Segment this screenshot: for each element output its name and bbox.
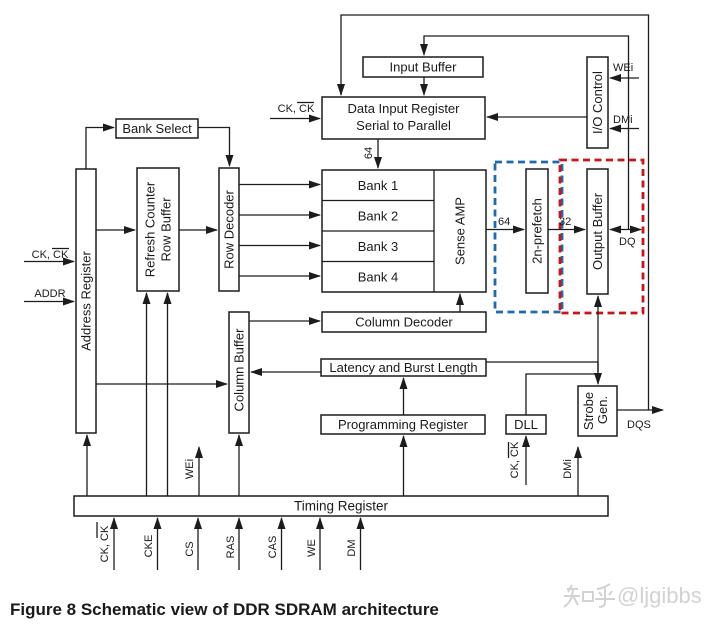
svg-text:Bank 3: Bank 3 — [358, 239, 398, 254]
svg-text:Bank Select: Bank Select — [122, 121, 192, 136]
svg-text:Row Decoder: Row Decoder — [222, 189, 237, 268]
svg-text:I/O Control: I/O Control — [590, 71, 605, 134]
svg-text:DQ: DQ — [619, 236, 636, 248]
svg-text:Programming Register: Programming Register — [338, 417, 469, 432]
svg-text:RAS: RAS — [225, 536, 237, 559]
svg-text:Timing Register: Timing Register — [294, 499, 389, 514]
svg-text:Input Buffer: Input Buffer — [390, 60, 458, 75]
svg-text:Column Buffer: Column Buffer — [232, 328, 247, 412]
svg-text:Bank 4: Bank 4 — [358, 270, 398, 285]
svg-text:Serial to Parallel: Serial to Parallel — [356, 118, 451, 133]
svg-text:Row Buffer: Row Buffer — [159, 197, 174, 262]
svg-text:WE: WE — [306, 539, 318, 557]
svg-text:Figure 8 Schematic view of DDR: Figure 8 Schematic view of DDR SDRAM arc… — [10, 600, 439, 619]
svg-text:Bank 1: Bank 1 — [358, 178, 398, 193]
svg-text:32: 32 — [559, 216, 571, 228]
svg-text:DMi: DMi — [613, 114, 633, 126]
svg-text:Data Input Register: Data Input Register — [347, 101, 460, 116]
svg-text:ADDR: ADDR — [34, 288, 65, 300]
svg-text:DLL: DLL — [514, 417, 538, 432]
svg-text:64: 64 — [498, 216, 510, 228]
svg-text:Bank 2: Bank 2 — [358, 209, 398, 224]
svg-text:@ljgibbs: @ljgibbs — [617, 583, 702, 608]
svg-text:Refresh Counter: Refresh Counter — [143, 181, 158, 277]
svg-text:CKE: CKE — [143, 535, 155, 558]
svg-text:Address Register: Address Register — [79, 250, 94, 350]
svg-text:Strobe: Strobe — [581, 392, 596, 430]
svg-text:2n-prefetch: 2n-prefetch — [530, 198, 545, 264]
svg-text:DMi: DMi — [562, 459, 574, 479]
svg-text:WEi: WEi — [184, 459, 196, 479]
svg-text:DM: DM — [346, 539, 358, 556]
svg-text:CS: CS — [184, 541, 196, 556]
svg-text:Output Buffer: Output Buffer — [590, 192, 605, 270]
svg-text:Column Decoder: Column Decoder — [355, 315, 453, 330]
svg-text:CK, CK: CK, CK — [509, 441, 521, 478]
svg-text:Latency and Burst Length: Latency and Burst Length — [329, 360, 477, 375]
svg-text:CK, CK: CK, CK — [32, 249, 69, 261]
svg-text:Sense AMP: Sense AMP — [453, 197, 468, 265]
svg-text:Gen.: Gen. — [595, 396, 610, 424]
svg-text:WEi: WEi — [613, 62, 633, 74]
svg-text:CK, CK: CK, CK — [278, 103, 315, 115]
svg-text:CAS: CAS — [267, 536, 279, 559]
svg-text:64: 64 — [363, 147, 375, 159]
svg-text:DQS: DQS — [627, 419, 651, 431]
svg-text:CK, CK: CK, CK — [99, 525, 111, 562]
